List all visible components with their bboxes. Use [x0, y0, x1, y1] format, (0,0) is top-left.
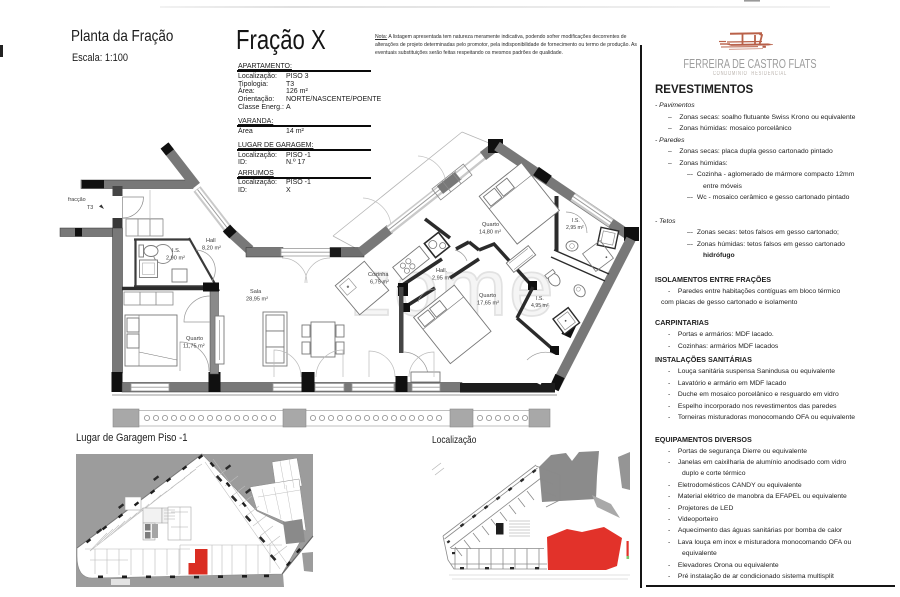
- svg-text:I.S.: I.S.: [172, 248, 181, 254]
- svg-text:4,95 m²: 4,95 m²: [531, 303, 549, 309]
- svg-text:14,80 m²: 14,80 m²: [479, 230, 501, 236]
- svg-text:I.S.: I.S.: [536, 296, 544, 302]
- svg-text:2,95 m²: 2,95 m²: [566, 225, 584, 231]
- svg-text:Cozinha: Cozinha: [368, 272, 389, 278]
- svg-text:28,95 m²: 28,95 m²: [246, 297, 268, 303]
- svg-text:Hall: Hall: [206, 238, 216, 244]
- svg-text:Hall.: Hall.: [436, 268, 448, 274]
- svg-text:2,95 m²: 2,95 m²: [432, 276, 451, 282]
- svg-text:fracção: fracção: [68, 197, 86, 203]
- svg-text:Sala: Sala: [250, 289, 262, 295]
- svg-text:Quarto: Quarto: [186, 336, 203, 342]
- svg-text:6,75 m²: 6,75 m²: [370, 280, 389, 286]
- svg-text:Quarto: Quarto: [482, 222, 499, 228]
- svg-text:8,20 m²: 8,20 m²: [202, 246, 221, 252]
- svg-text:I.S.: I.S.: [572, 218, 580, 224]
- svg-text:Quarto: Quarto: [479, 293, 496, 299]
- svg-text:17,65 m²: 17,65 m²: [477, 301, 499, 307]
- svg-text:11,75 m²: 11,75 m²: [183, 344, 205, 350]
- svg-text:2,90 m²: 2,90 m²: [166, 256, 185, 262]
- svg-text:T3: T3: [87, 205, 93, 211]
